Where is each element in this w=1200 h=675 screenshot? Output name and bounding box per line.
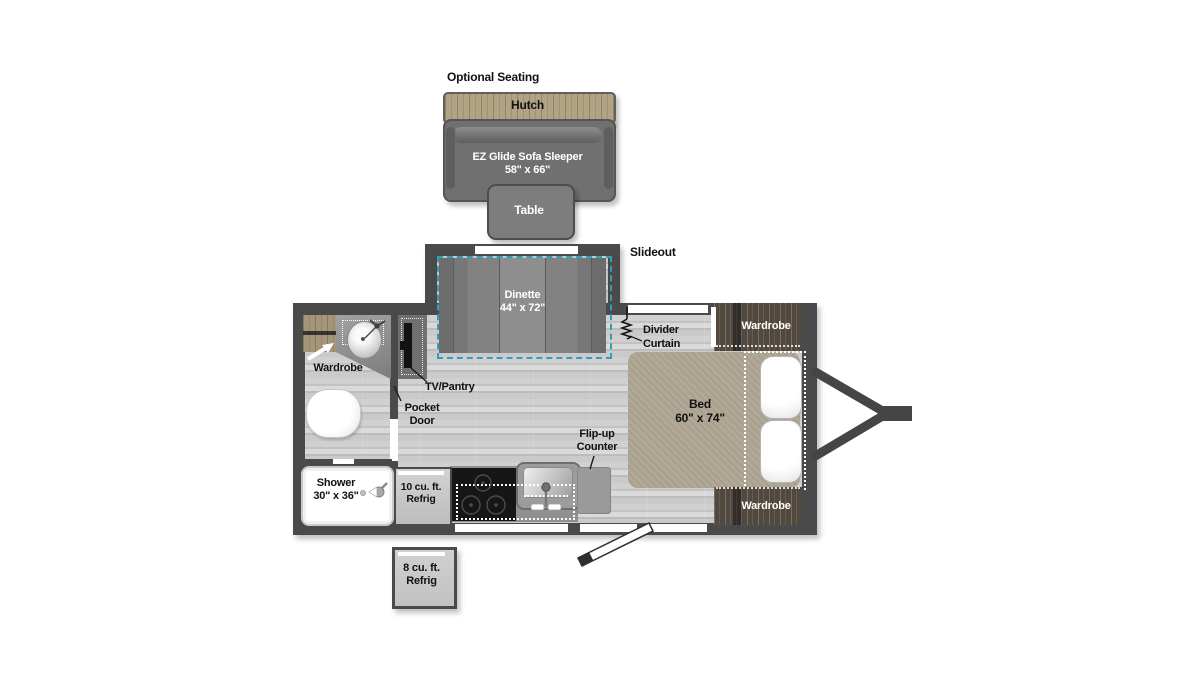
wardrobe-bottom-label: Wardrobe: [728, 500, 804, 512]
hitch-aframe-icon: [812, 370, 912, 458]
pocket-door-label: Pocket Door: [400, 402, 444, 428]
window-top: [628, 305, 708, 313]
wardrobe-top-outline: [716, 345, 800, 347]
sink-outline: [524, 495, 568, 497]
tv-pantry-cabinet: [398, 315, 427, 379]
kitchen-counter-outline: [456, 484, 575, 520]
window-bottom-2: [580, 524, 637, 532]
bath-door-opening: [333, 459, 354, 464]
refrigerator-8-label: 8 cu. ft. Refrig: [392, 562, 451, 588]
tv-mount-icon: [400, 341, 404, 350]
slideout-label: Slideout: [630, 246, 676, 258]
window-bottom-3: [650, 524, 707, 532]
flip-up-counter: [577, 467, 611, 514]
bath-wardrobe: [303, 315, 336, 352]
divider-curtain-label: Divider Curtain: [643, 323, 680, 351]
bed-label: Bed 60" x 74": [630, 397, 770, 425]
pillow: [760, 420, 802, 483]
pocket-door-opening: [390, 419, 398, 461]
refrigerator-10-handle: [398, 471, 444, 475]
slideout-window: [475, 246, 578, 254]
toilet: [306, 389, 361, 438]
bath-wardrobe-label: Wardrobe: [310, 362, 366, 374]
hutch-label: Hutch: [443, 99, 612, 111]
refrigerator-8-handle: [398, 552, 445, 556]
tv-icon: [404, 323, 412, 368]
wardrobe-bottom-outline: [716, 487, 800, 489]
optional-seating-title: Optional Seating: [447, 71, 539, 83]
floorplan-canvas: Optional Seating Hutch EZ Glide Sofa Sle…: [0, 0, 1200, 675]
bath-wardrobe-shelf: [303, 331, 336, 335]
bath-sink: [347, 321, 382, 359]
flip-up-counter-label: Flip-up Counter: [567, 428, 627, 454]
wardrobe-side-gap: [711, 307, 716, 347]
shower-label: Shower 30" x 36": [303, 477, 369, 503]
wardrobe-top-label: Wardrobe: [728, 320, 804, 332]
table-label: Table: [487, 204, 571, 216]
tv-pantry-label: TV/Pantry: [425, 381, 475, 393]
window-bottom-1: [455, 524, 568, 532]
dinette-label: Dinette 44" x 72": [437, 289, 608, 315]
sofa-label: EZ Glide Sofa Sleeper 58" x 66": [447, 151, 608, 177]
sofa-back-cushion: [453, 127, 602, 143]
refrigerator-10-label: 10 cu. ft. Refrig: [394, 481, 448, 505]
